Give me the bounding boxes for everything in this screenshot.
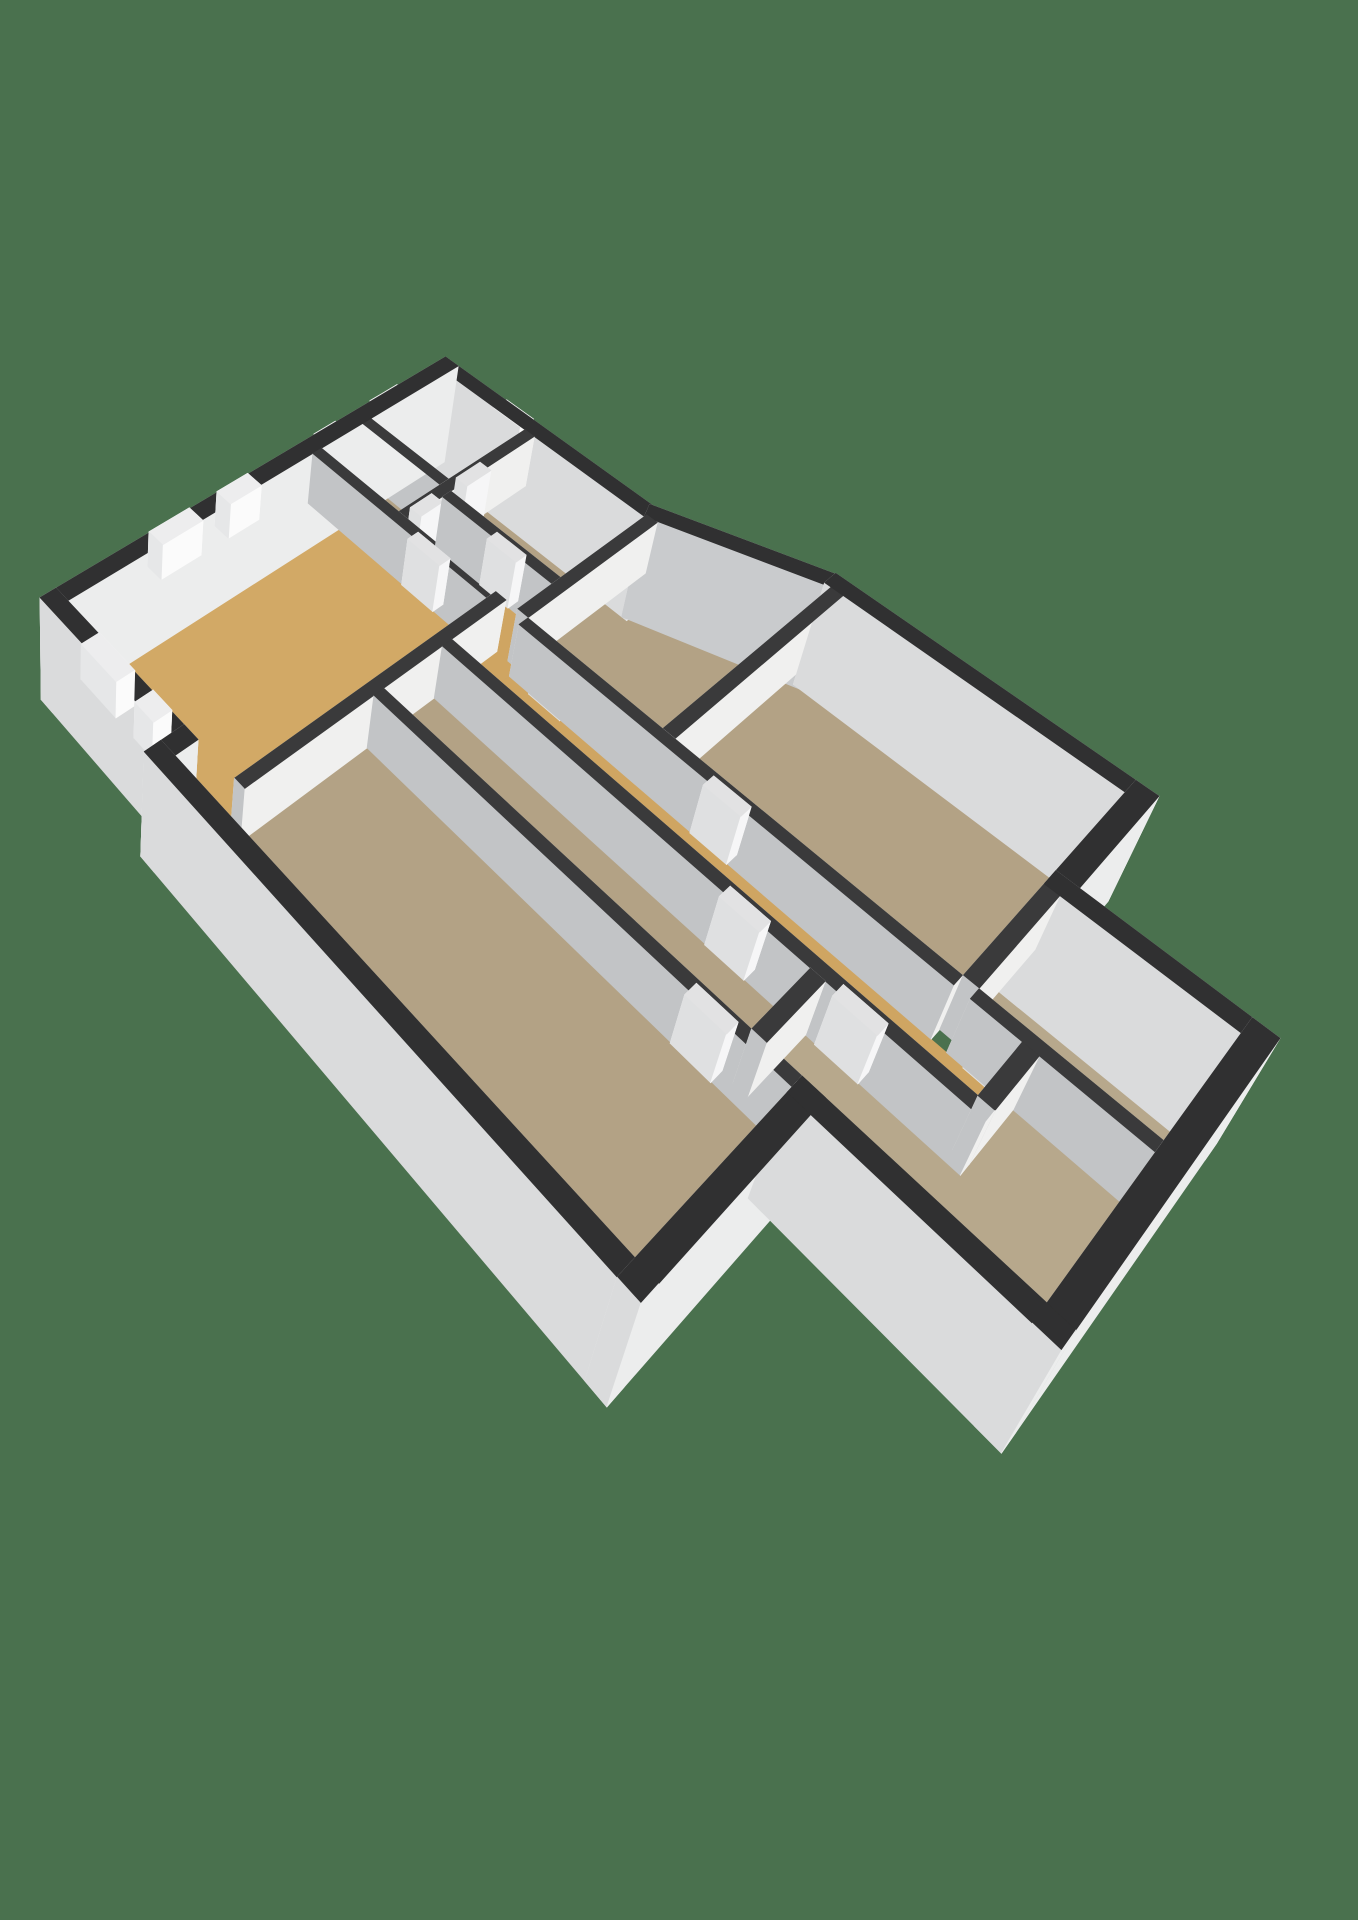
floorplan-3d-render: [0, 0, 1358, 1920]
floorplan-canvas: [0, 0, 1358, 1920]
